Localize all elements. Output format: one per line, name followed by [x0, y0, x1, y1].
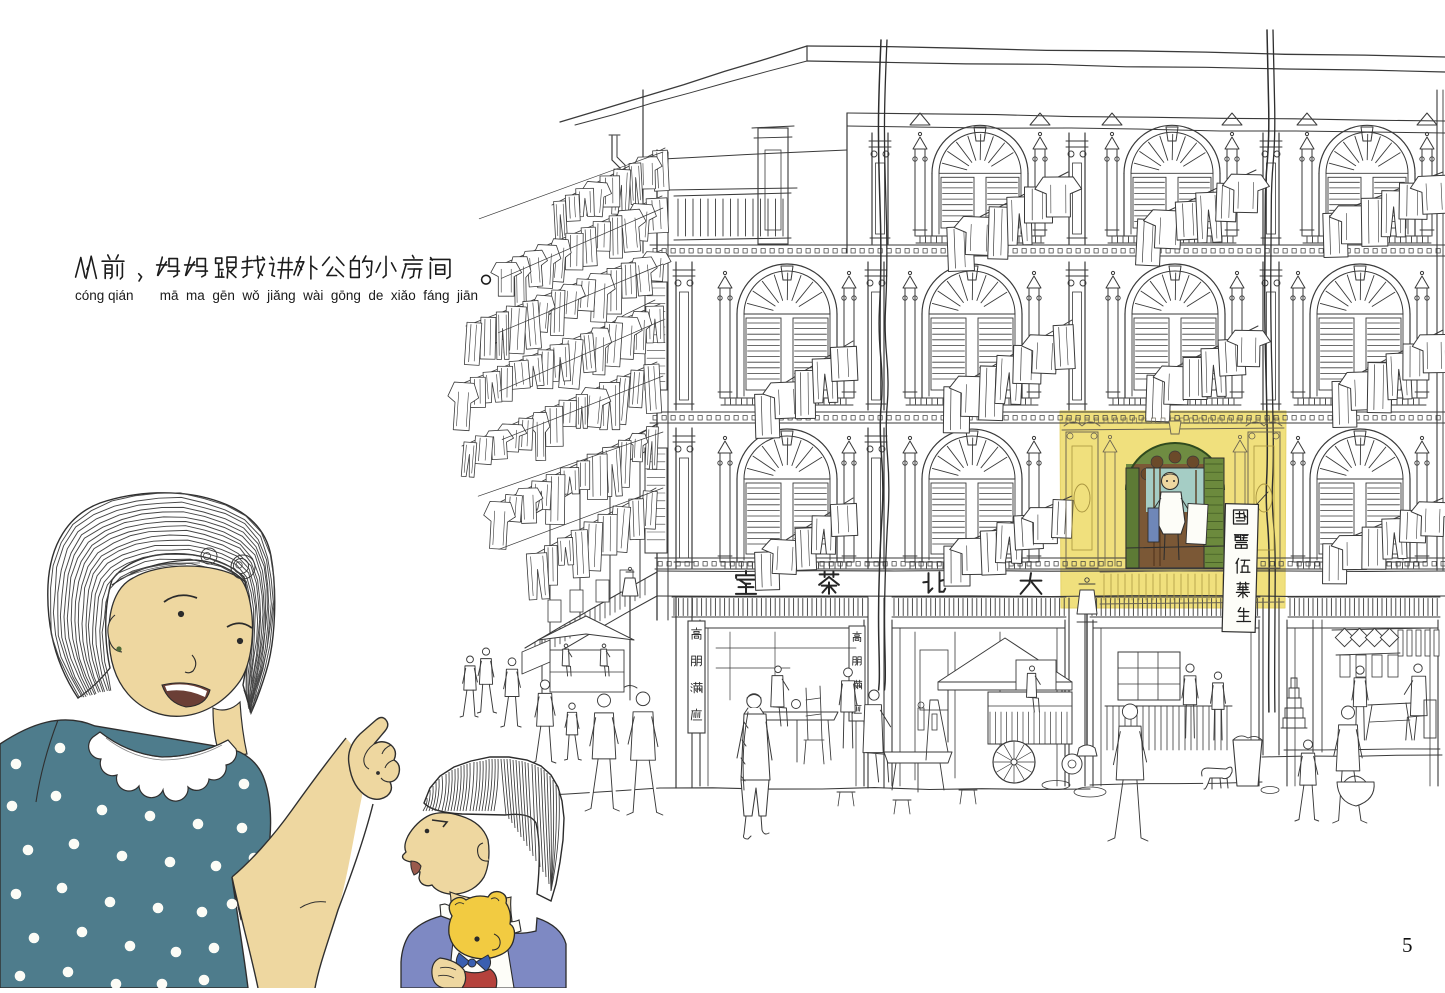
svg-text:5: 5: [1402, 933, 1413, 957]
svg-text:cóng qián mā ma gēn w: cóng qián mā ma gēn wǒ jiǎng wài gōng de…: [75, 288, 478, 303]
